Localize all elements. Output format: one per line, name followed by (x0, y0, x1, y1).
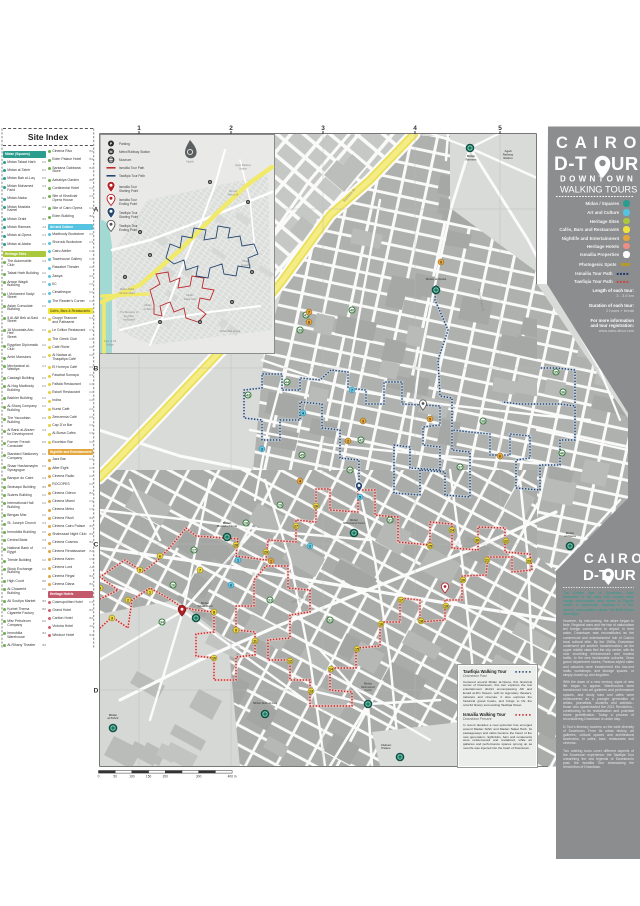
svg-text:4: 4 (299, 479, 301, 483)
svg-text:Egyptian: Egyptian (124, 314, 135, 318)
svg-text:16: 16 (379, 622, 383, 626)
svg-text:Kasr al-Nil: Kasr al-Nil (104, 339, 116, 343)
svg-text:Starting Point: Starting Point (119, 189, 138, 193)
svg-text:30: 30 (348, 468, 352, 472)
svg-text:5: 5 (139, 568, 141, 572)
svg-text:28: 28 (244, 521, 248, 525)
svg-text:al-Ataba: al-Ataba (241, 263, 251, 267)
svg-text:20: 20 (461, 578, 465, 582)
svg-text:4: 4 (302, 411, 304, 415)
svg-text:2: 2 (347, 439, 349, 443)
svg-text:29: 29 (278, 503, 282, 507)
svg-text:al-Tahrir: al-Tahrir (143, 307, 153, 311)
svg-text:31: 31 (388, 518, 392, 522)
svg-text:3: 3 (321, 125, 325, 132)
svg-text:Midan: Midan (242, 259, 250, 263)
svg-text:Mostafa Kamel: Mostafa Kamel (217, 524, 238, 528)
svg-text:9: 9 (235, 628, 237, 632)
svg-text:200: 200 (163, 775, 169, 779)
svg-text:8: 8 (213, 610, 215, 614)
svg-text:0: 0 (98, 775, 100, 779)
svg-text:25: 25 (428, 544, 432, 548)
svg-text:11: 11 (253, 639, 257, 643)
svg-text:39: 39 (298, 328, 302, 332)
svg-text:UR: UR (611, 153, 639, 174)
svg-text:46: 46 (560, 451, 564, 455)
svg-text:1: 1 (270, 559, 272, 563)
svg-text:300: 300 (196, 775, 202, 779)
svg-text:Midan: Midan (186, 293, 194, 297)
svg-text:37: 37 (458, 465, 462, 469)
svg-text:7: 7 (308, 310, 310, 314)
svg-text:100: 100 (129, 775, 135, 779)
svg-text:15: 15 (355, 647, 359, 651)
svg-text:4: 4 (413, 125, 417, 132)
svg-text:D: D (94, 688, 99, 695)
svg-text:12: 12 (288, 659, 292, 663)
svg-text:150: 150 (146, 775, 152, 779)
svg-text:B: B (94, 366, 99, 373)
svg-text:6: 6 (159, 554, 161, 558)
svg-text:1: 1 (137, 125, 141, 132)
svg-text:21: 21 (485, 558, 489, 562)
svg-text:Ending Point: Ending Point (119, 228, 137, 232)
svg-text:27: 27 (294, 524, 298, 528)
svg-text:30: 30 (475, 538, 479, 542)
svg-text:29: 29 (264, 550, 268, 554)
svg-text:27: 27 (192, 548, 196, 552)
svg-text:CAIRO: CAIRO (556, 134, 640, 152)
svg-text:2: 2 (127, 598, 129, 602)
svg-text:Antiquities: Antiquities (123, 318, 136, 322)
svg-text:32: 32 (328, 618, 332, 622)
svg-text:Station: Station (503, 156, 513, 160)
svg-text:9: 9 (440, 260, 442, 264)
svg-text:M: M (110, 150, 113, 154)
svg-text:Station: Station (239, 167, 248, 171)
svg-text:26: 26 (171, 583, 175, 587)
svg-text:Ending Point: Ending Point (119, 202, 137, 206)
svg-text:26: 26 (314, 504, 318, 508)
svg-text:50: 50 (113, 775, 117, 779)
svg-text:Midan: Midan (144, 303, 152, 307)
svg-text:Starting Point: Starting Point (119, 215, 138, 219)
svg-text:42: 42 (359, 438, 363, 442)
svg-text:Palace: Palace (381, 746, 391, 750)
svg-text:35: 35 (554, 370, 558, 374)
svg-text:al-Opera: al-Opera (564, 534, 576, 538)
svg-text:Bridge: Bridge (106, 343, 114, 347)
svg-text:Talaat Harb: Talaat Harb (183, 297, 197, 301)
svg-text:North: North (186, 160, 194, 164)
svg-text:43: 43 (246, 393, 250, 397)
svg-text:Parking: Parking (119, 142, 130, 146)
svg-text:28: 28 (234, 543, 238, 547)
svg-text:Midan Abdel: Midan Abdel (120, 287, 135, 291)
svg-text:10: 10 (212, 656, 216, 660)
svg-text:Tawfiqia Tour Path: Tawfiqia Tour Path (119, 174, 145, 178)
svg-text:24: 24 (450, 528, 454, 532)
svg-text:5: 5 (359, 495, 361, 499)
svg-text:Museum: Museum (119, 158, 132, 162)
svg-text:Midan Bab al-Luq: Midan Bab al-Luq (253, 701, 277, 705)
svg-text:1: 1 (149, 590, 151, 594)
svg-text:DOWNTOWN: DOWNTOWN (560, 175, 636, 184)
svg-text:18: 18 (419, 619, 423, 623)
svg-text:8: 8 (308, 320, 310, 324)
svg-text:2: 2 (229, 125, 233, 132)
svg-text:Ismailia Tour Path: Ismailia Tour Path (119, 166, 145, 170)
svg-text:WALKING TOURS: WALKING TOURS (560, 185, 637, 195)
svg-text:7: 7 (351, 388, 353, 392)
svg-text:Moneim Riad: Moneim Riad (119, 291, 135, 295)
svg-text:6: 6 (499, 454, 501, 458)
svg-text:3: 3 (111, 616, 113, 620)
svg-text:Agad Railway: Agad Railway (235, 163, 252, 167)
svg-text:17: 17 (399, 598, 403, 602)
svg-text:UR: UR (614, 567, 636, 584)
svg-text:7: 7 (199, 568, 201, 572)
svg-text:13: 13 (309, 689, 313, 693)
svg-text:al-Tahrir: al-Tahrir (107, 716, 119, 720)
svg-text:A: A (94, 207, 99, 214)
svg-text:Helmy St: Helmy St (228, 193, 239, 197)
svg-text:3: 3 (362, 419, 364, 423)
svg-text:C: C (94, 542, 99, 549)
svg-text:Metro/Railway Station: Metro/Railway Station (119, 150, 150, 154)
svg-text:40: 40 (350, 308, 354, 312)
svg-text:6: 6 (230, 583, 232, 587)
svg-text:22: 22 (504, 539, 508, 543)
svg-text:5: 5 (429, 417, 431, 421)
svg-text:Farid: Farid (364, 688, 371, 692)
svg-text:400 m: 400 m (228, 775, 237, 779)
svg-text:Adly St: Adly St (365, 497, 375, 502)
svg-text:Midan al-Ataba: Midan al-Ataba (426, 277, 447, 281)
svg-text:5: 5 (498, 125, 502, 132)
svg-text:19: 19 (444, 604, 448, 608)
svg-text:D-T: D-T (554, 154, 587, 175)
svg-text:34: 34 (160, 620, 164, 624)
svg-text:Talaat Harb: Talaat Harb (197, 604, 213, 608)
svg-text:38: 38 (481, 419, 485, 423)
svg-text:36: 36 (561, 390, 565, 394)
svg-text:2: 2 (309, 544, 311, 548)
svg-text:Mohamed Farid: Mohamed Farid (343, 521, 365, 525)
svg-text:3: 3 (261, 447, 263, 451)
svg-text:44: 44 (285, 380, 289, 384)
svg-text:45: 45 (300, 453, 304, 457)
svg-text:Midan Bab al-Luq: Midan Bab al-Luq (220, 329, 241, 333)
svg-text:Ahmed: Ahmed (229, 189, 238, 193)
svg-text:14: 14 (329, 667, 333, 671)
svg-text:Ramses: Ramses (465, 158, 476, 162)
svg-text:23: 23 (527, 559, 531, 563)
svg-text:CAIRO: CAIRO (584, 551, 640, 566)
svg-text:The Museum of: The Museum of (120, 310, 138, 314)
svg-text:1: 1 (237, 558, 239, 562)
svg-text:33: 33 (268, 598, 272, 602)
